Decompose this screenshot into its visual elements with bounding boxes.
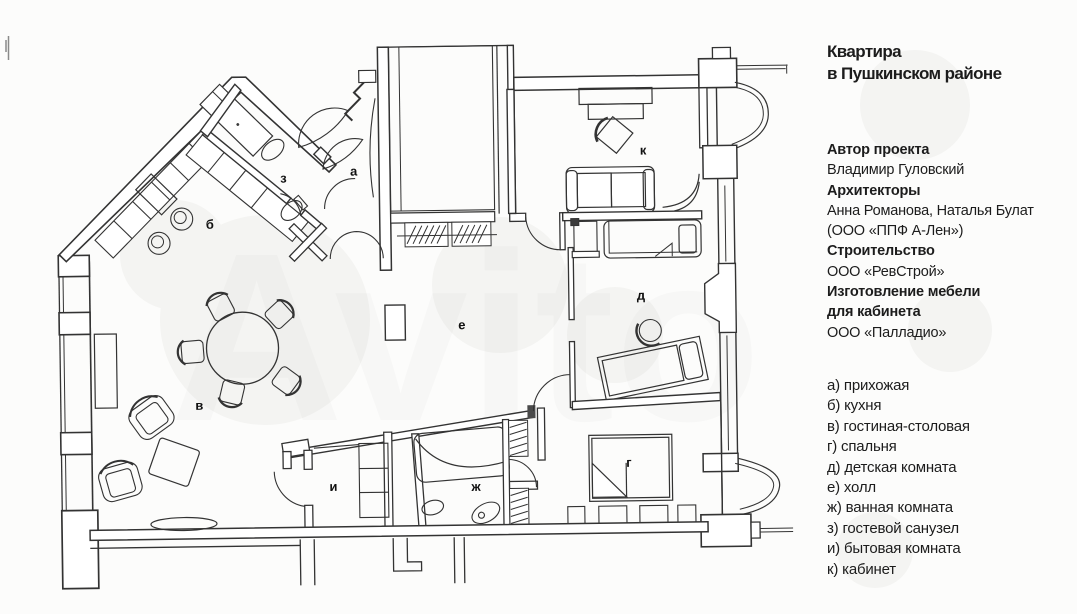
svg-text:б: б bbox=[206, 217, 214, 232]
svg-text:ж: ж bbox=[470, 479, 481, 494]
svg-text:и: и bbox=[329, 479, 337, 494]
svg-text:а: а bbox=[350, 164, 358, 179]
svg-text:з: з bbox=[280, 171, 287, 186]
svg-text:д: д bbox=[637, 288, 646, 303]
svg-text:к: к bbox=[640, 143, 647, 158]
svg-text:е: е bbox=[458, 317, 465, 332]
svg-text:г: г bbox=[626, 455, 632, 470]
svg-text:в: в bbox=[195, 398, 203, 413]
